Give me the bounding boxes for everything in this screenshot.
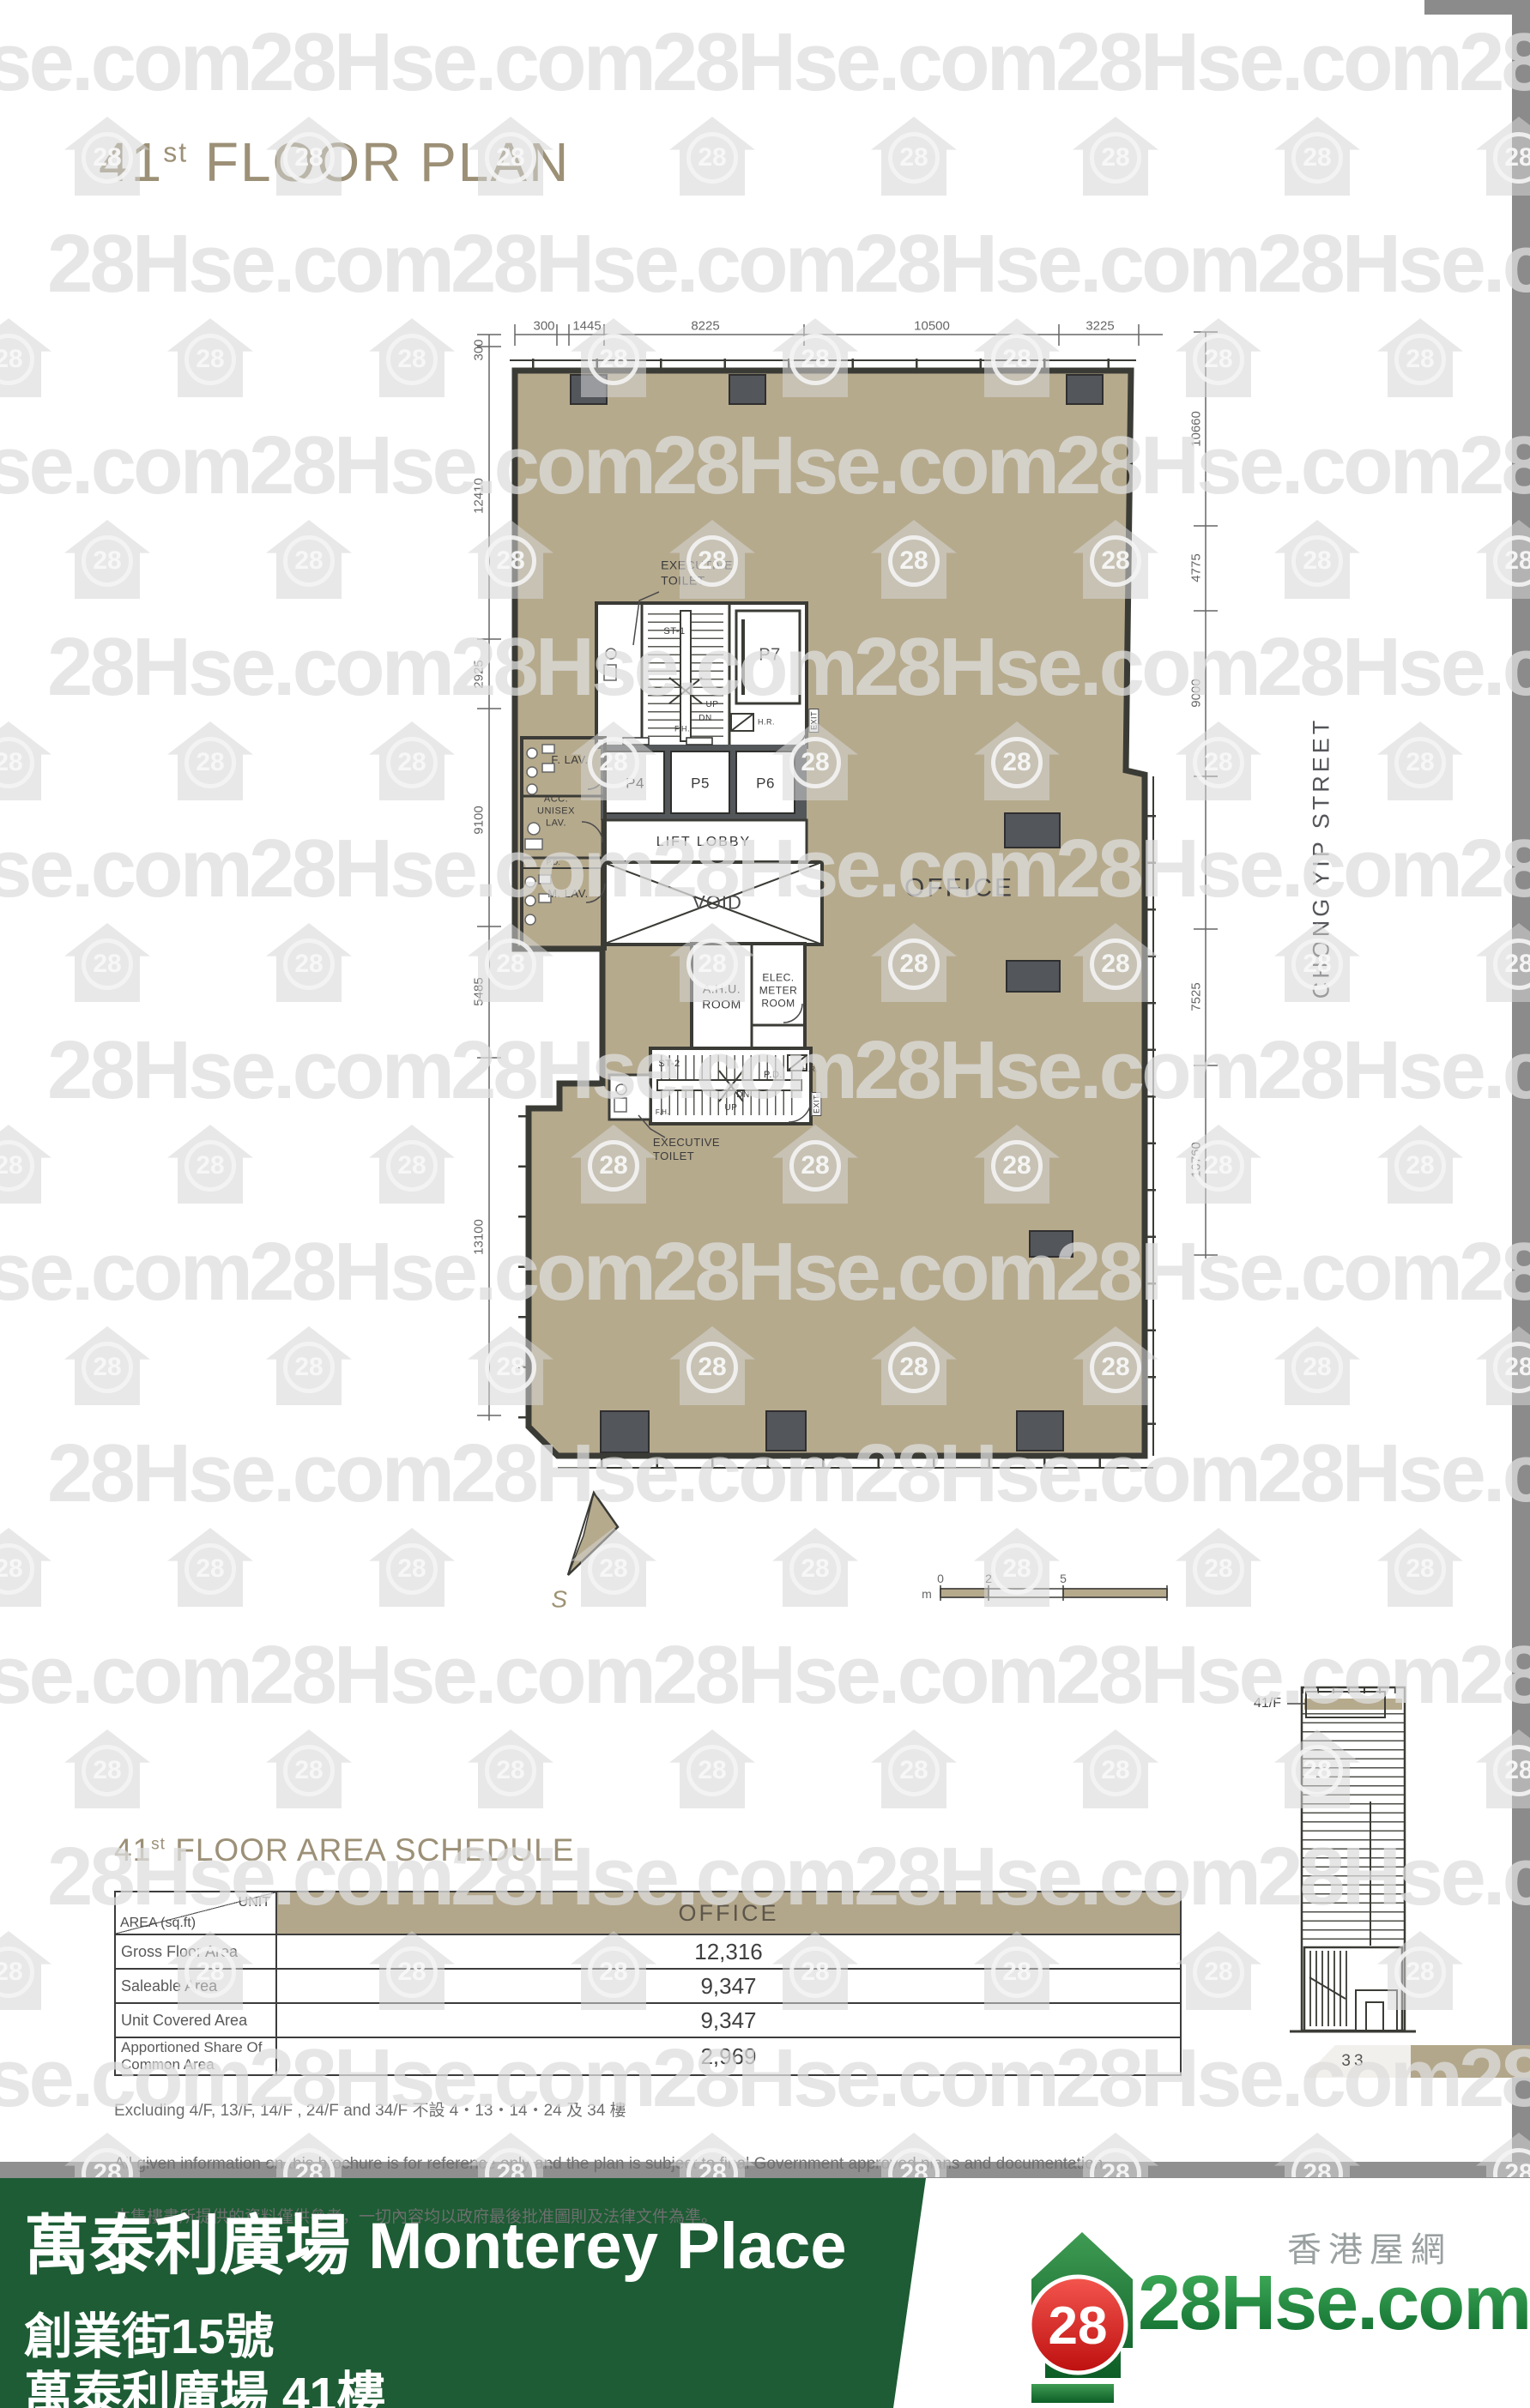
area-schedule-table: UNIT AREA (sq.ft) OFFICE Gross Floor Are… [114,1891,1182,2076]
compass-label: S [551,1584,567,1614]
page-number: 33 [1341,2052,1366,2071]
room-label-acc-lav: ACC. UNISEX LAV. [537,794,575,829]
28hse-logo-icon: 28 [1030,2232,1133,2403]
room-label-up-1: UP [706,700,719,711]
page-number-band [1303,2045,1530,2078]
table-header-row: UNIT AREA (sq.ft) OFFICE [116,1892,1180,1934]
room-label-p4: P4 [626,774,644,792]
brand-site-name: 28Hse.com [1138,2260,1530,2348]
dim-left-5: 5485 [472,977,487,1005]
table-row: Apportioned Share Of Common Area 2,969 [116,2037,1180,2074]
row-label: Apportioned Share Of Common Area [116,2038,277,2074]
room-label-exit-2: EXIT [812,1092,821,1116]
elevation-floor-label: 41/F [1254,1696,1281,1711]
banner-floor: 萬泰利廣場 41樓 [24,2356,385,2408]
row-value: 12,316 [277,1935,1180,1968]
room-label-pd-1: P.D. [547,859,561,867]
table-row: Saleable Area 9,347 [116,1968,1180,2002]
room-label-hr-1: H.R. [758,717,775,727]
room-label-m-lav: M. LAV. [547,887,589,901]
note-line-2: All given information on this brochure i… [114,2151,1108,2177]
brochure-page: 28 41st FLOOR PLAN 300 1445 8225 10500 3… [0,0,1530,2408]
room-label-hr-2: H.R. [802,1065,818,1074]
exit-tag-2: EXIT [811,1092,821,1116]
scale-tick-0: 0 [937,1572,944,1585]
dim-right-4: 7525 [1189,982,1204,1011]
corner-label-area: AREA (sq.ft) [120,1916,196,1931]
dim-top-2: 1445 [572,319,601,334]
scale-bar [940,1585,1167,1601]
room-label-dn-2: DN [736,1090,749,1101]
table-column-header-office: OFFICE [277,1892,1180,1934]
dim-top-1: 300 [533,319,554,334]
dim-right-2: 4775 [1189,553,1204,582]
building-elevation [1287,1687,1416,2031]
row-value: 2,969 [277,2038,1180,2074]
table-row: Unit Covered Area 9,347 [116,2002,1180,2037]
title-ordinal: st [163,137,188,168]
dim-left-3: 2925 [472,660,487,688]
page-title: 41st FLOOR PLAN [99,130,570,194]
room-label-fh-2: F.H. [656,1108,669,1117]
dim-right-3: 9000 [1189,679,1204,707]
schedule-heading: 41st FLOOR AREA SCHEDULE [114,1832,574,1868]
note-line-1: Excluding 4/F, 13/F, 14/F , 24/F and 34/… [114,2097,1108,2124]
north-arrow [568,1493,618,1575]
room-label-p6: P6 [756,774,775,792]
dim-left-6: 13100 [472,1219,487,1255]
dim-left-2: 12410 [472,478,487,514]
room-label-void: VOID [692,890,742,914]
room-label-st2: ST-2 [658,1059,680,1071]
table-row: Gross Floor Area 12,316 [116,1934,1180,1968]
room-label-up-2: UP [725,1103,738,1114]
room-label-executive-toilet-upper: EXECUTIVE TOILET [661,558,733,588]
dim-top-5: 3225 [1086,319,1114,334]
logo-badge-number: 28 [1049,2296,1108,2356]
room-label-pd-2: P.D. [764,1070,783,1082]
dim-top-4: 10500 [914,319,950,334]
exit-tag-1: EXIT [808,709,819,733]
schedule-heading-number: 41 [114,1832,151,1868]
room-label-st1: ST-1 [663,626,685,638]
dim-left-1: 300 [472,339,487,360]
room-label-elec: ELEC. METER ROOM [759,972,798,1011]
title-rest: FLOOR PLAN [188,131,570,193]
dim-right-5: 10760 [1189,1142,1204,1178]
room-label-ahu: A.H.U. ROOM [702,982,741,1012]
room-label-dn-1: DN [698,714,711,725]
row-label: Saleable Area [116,1970,277,2002]
row-label: Gross Floor Area [116,1935,277,1968]
dim-top-3: 8225 [691,319,719,334]
room-label-p5: P5 [691,774,710,792]
row-value: 9,347 [277,2004,1180,2037]
right-edge-bar [1512,0,1530,2165]
scale-tick-2: 2 [985,1572,992,1585]
room-label-office: OFFICE [904,872,1014,904]
scale-unit: m [922,1587,932,1601]
room-label-fh-1: F.H. [674,724,690,733]
banner-building-name: 萬泰利廣場 Monterey Place [24,2193,847,2287]
room-label-p7: P7 [759,645,780,667]
row-value: 9,347 [277,1970,1180,2002]
title-number: 41 [99,131,163,193]
room-label-f-lav: F. LAV. [551,753,588,767]
dim-left-4: 9100 [472,806,487,834]
row-label: Unit Covered Area [116,2004,277,2037]
room-label-exit-1: EXIT [809,709,819,733]
dim-right-1: 10660 [1189,411,1204,447]
scale-tick-5: 5 [1060,1572,1067,1585]
table-corner-cell: UNIT AREA (sq.ft) [116,1892,277,1934]
top-edge-bar [1424,0,1530,15]
street-label: CHONG YIP STREET [1309,717,1335,999]
corner-label-unit: UNIT [239,1895,270,1910]
schedule-heading-ordinal: st [151,1836,166,1854]
room-label-executive-toilet-lower: EXECUTIVE TOILET [653,1136,720,1164]
room-label-lift-lobby: LIFT LOBBY [656,834,751,851]
schedule-heading-rest: FLOOR AREA SCHEDULE [166,1832,574,1868]
